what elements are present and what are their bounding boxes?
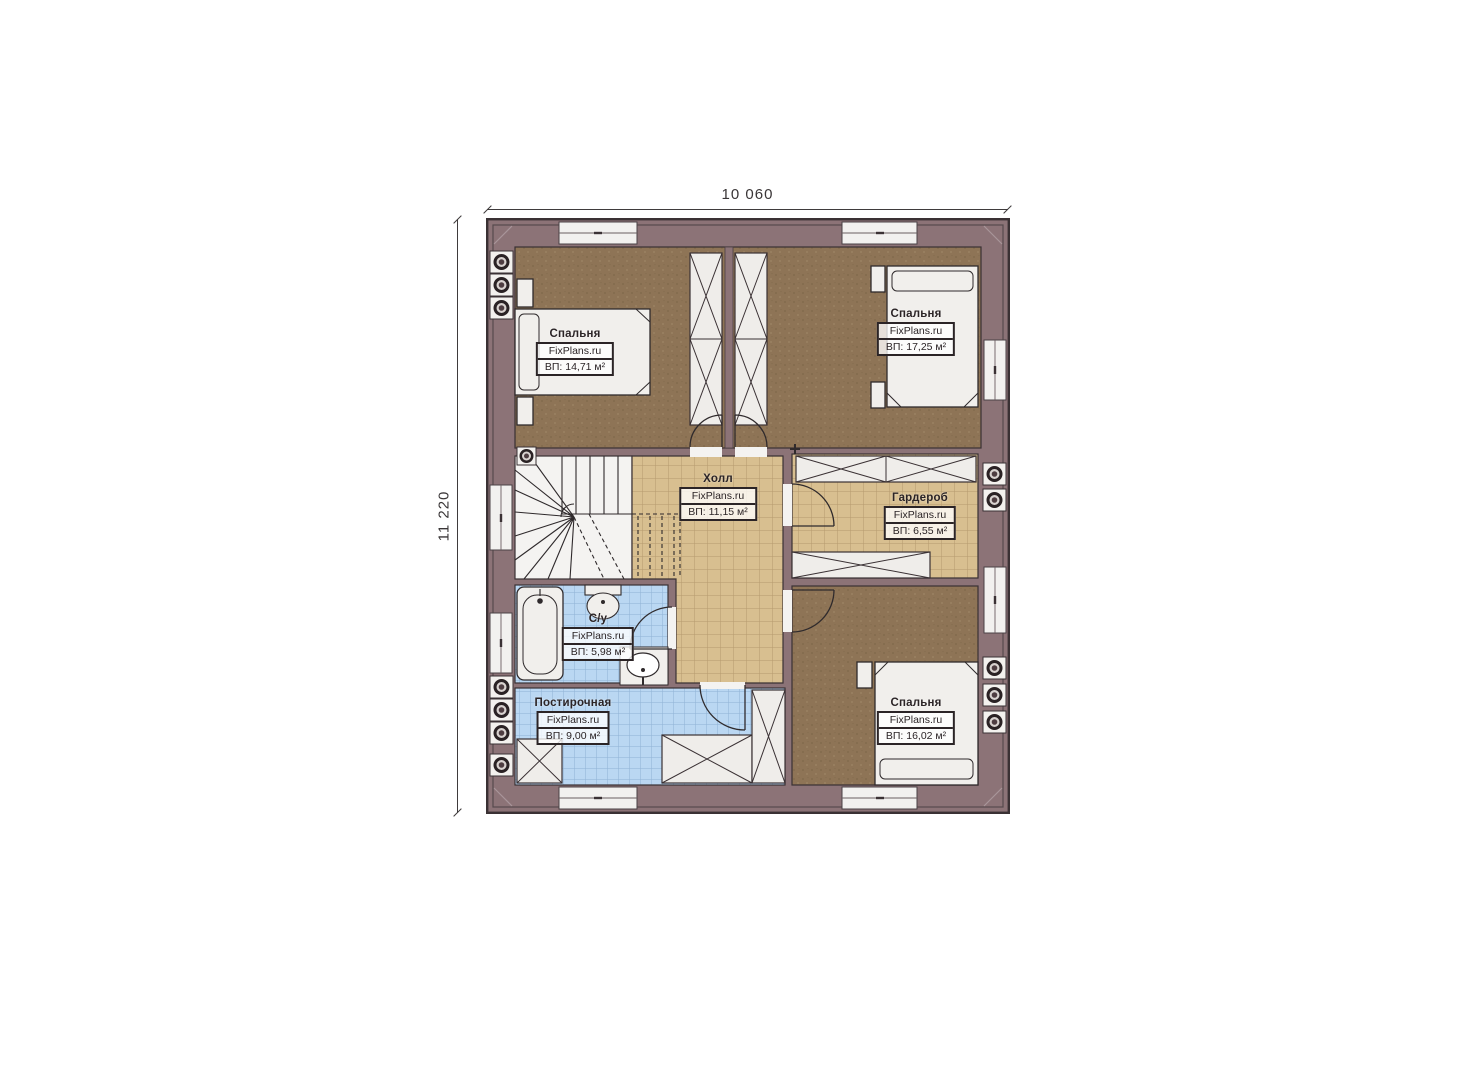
room-area: ВП: 16,02 м²: [879, 729, 953, 743]
room-area: ВП: 6,55 м²: [886, 524, 954, 538]
room-info-box: FixPlans.ru ВП: 9,00 м²: [537, 711, 609, 745]
room-name: Спальня: [877, 308, 955, 320]
top-dimension-line: [487, 209, 1008, 210]
watermark: FixPlans.ru: [538, 344, 612, 360]
watermark: FixPlans.ru: [681, 489, 755, 505]
watermark: FixPlans.ru: [539, 713, 607, 729]
bathtub-faucet: [537, 598, 543, 604]
watermark: FixPlans.ru: [564, 629, 632, 645]
floor-plan-page: 10 060 11 220: [0, 0, 1473, 1080]
left-dimension-line: [457, 219, 458, 813]
floor-plan: Спальня FixPlans.ru ВП: 14,71 м² Спальня…: [486, 218, 1010, 814]
room-label-wardrobe: Гардероб FixPlans.ru ВП: 6,55 м²: [884, 492, 956, 540]
room-label-bedroom-bottom-right: Спальня FixPlans.ru ВП: 16,02 м²: [877, 697, 955, 745]
nightstand: [517, 397, 533, 425]
room-label-bathroom: С/у FixPlans.ru ВП: 5,98 м²: [562, 613, 634, 661]
watermark: FixPlans.ru: [886, 508, 954, 524]
room-name: Спальня: [536, 328, 614, 340]
nightstand: [871, 382, 885, 408]
room-info-box: FixPlans.ru ВП: 14,71 м²: [536, 342, 614, 376]
room-area: ВП: 9,00 м²: [539, 729, 607, 743]
watermark: FixPlans.ru: [879, 324, 953, 340]
room-name: С/у: [562, 613, 634, 625]
room-info-box: FixPlans.ru ВП: 11,15 м²: [679, 487, 757, 521]
top-dimension-label: 10 060: [487, 186, 1008, 203]
room-area: ВП: 17,25 м²: [879, 340, 953, 354]
room-area: ВП: 11,15 м²: [681, 505, 755, 519]
room-name: Постирочная: [535, 697, 612, 709]
left-dimension-label: 11 220: [436, 491, 453, 542]
room-name: Спальня: [877, 697, 955, 709]
room-area: ВП: 5,98 м²: [564, 645, 632, 659]
room-info-box: FixPlans.ru ВП: 17,25 м²: [877, 322, 955, 356]
room-label-bedroom-top-right: Спальня FixPlans.ru ВП: 17,25 м²: [877, 308, 955, 356]
room-label-bedroom-top-left: Спальня FixPlans.ru ВП: 14,71 м²: [536, 328, 614, 376]
room-info-box: FixPlans.ru ВП: 16,02 м²: [877, 711, 955, 745]
room-name: Холл: [679, 473, 757, 485]
room-info-box: FixPlans.ru ВП: 6,55 м²: [884, 506, 956, 540]
room-info-box: FixPlans.ru ВП: 5,98 м²: [562, 627, 634, 661]
watermark: FixPlans.ru: [879, 713, 953, 729]
room-name: Гардероб: [884, 492, 956, 504]
nightstand: [517, 279, 533, 307]
nightstand: [871, 266, 885, 292]
partition-wall: [725, 247, 733, 448]
room-area: ВП: 14,71 м²: [538, 360, 612, 374]
room-label-hall: Холл FixPlans.ru ВП: 11,15 м²: [679, 473, 757, 521]
nightstand: [857, 662, 872, 688]
room-label-laundry: Постирочная FixPlans.ru ВП: 9,00 м²: [535, 697, 612, 745]
